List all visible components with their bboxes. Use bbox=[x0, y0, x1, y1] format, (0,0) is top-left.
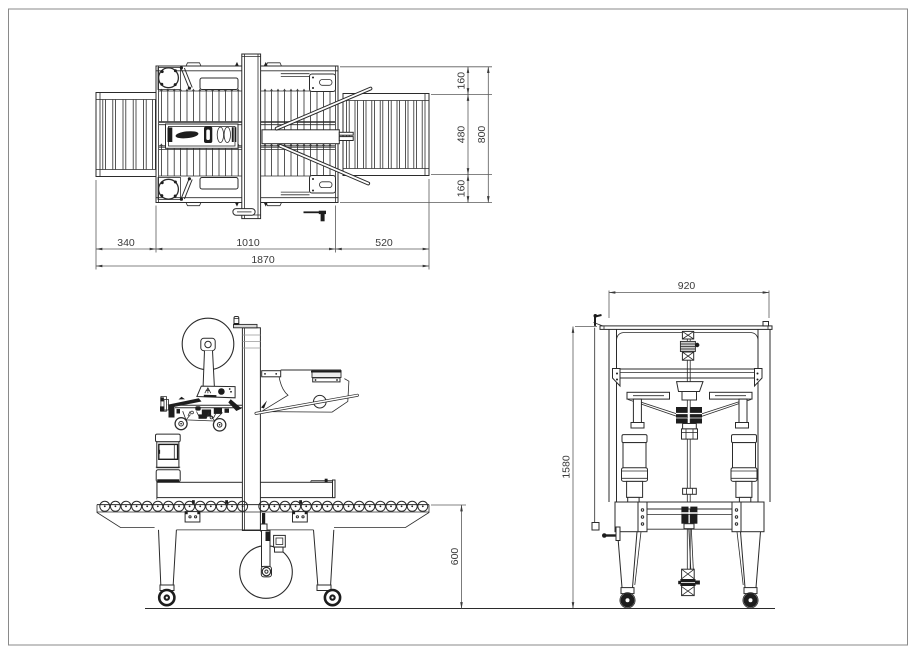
svg-text:600: 600 bbox=[449, 548, 461, 566]
svg-text:1870: 1870 bbox=[251, 254, 275, 266]
svg-text:520: 520 bbox=[375, 237, 393, 249]
svg-text:1580: 1580 bbox=[561, 455, 573, 479]
svg-text:340: 340 bbox=[117, 237, 135, 249]
svg-text:160: 160 bbox=[456, 180, 468, 198]
svg-text:480: 480 bbox=[456, 126, 468, 144]
svg-text:160: 160 bbox=[456, 72, 468, 90]
svg-text:920: 920 bbox=[678, 280, 696, 292]
svg-text:1010: 1010 bbox=[236, 237, 260, 249]
svg-text:800: 800 bbox=[476, 126, 488, 144]
